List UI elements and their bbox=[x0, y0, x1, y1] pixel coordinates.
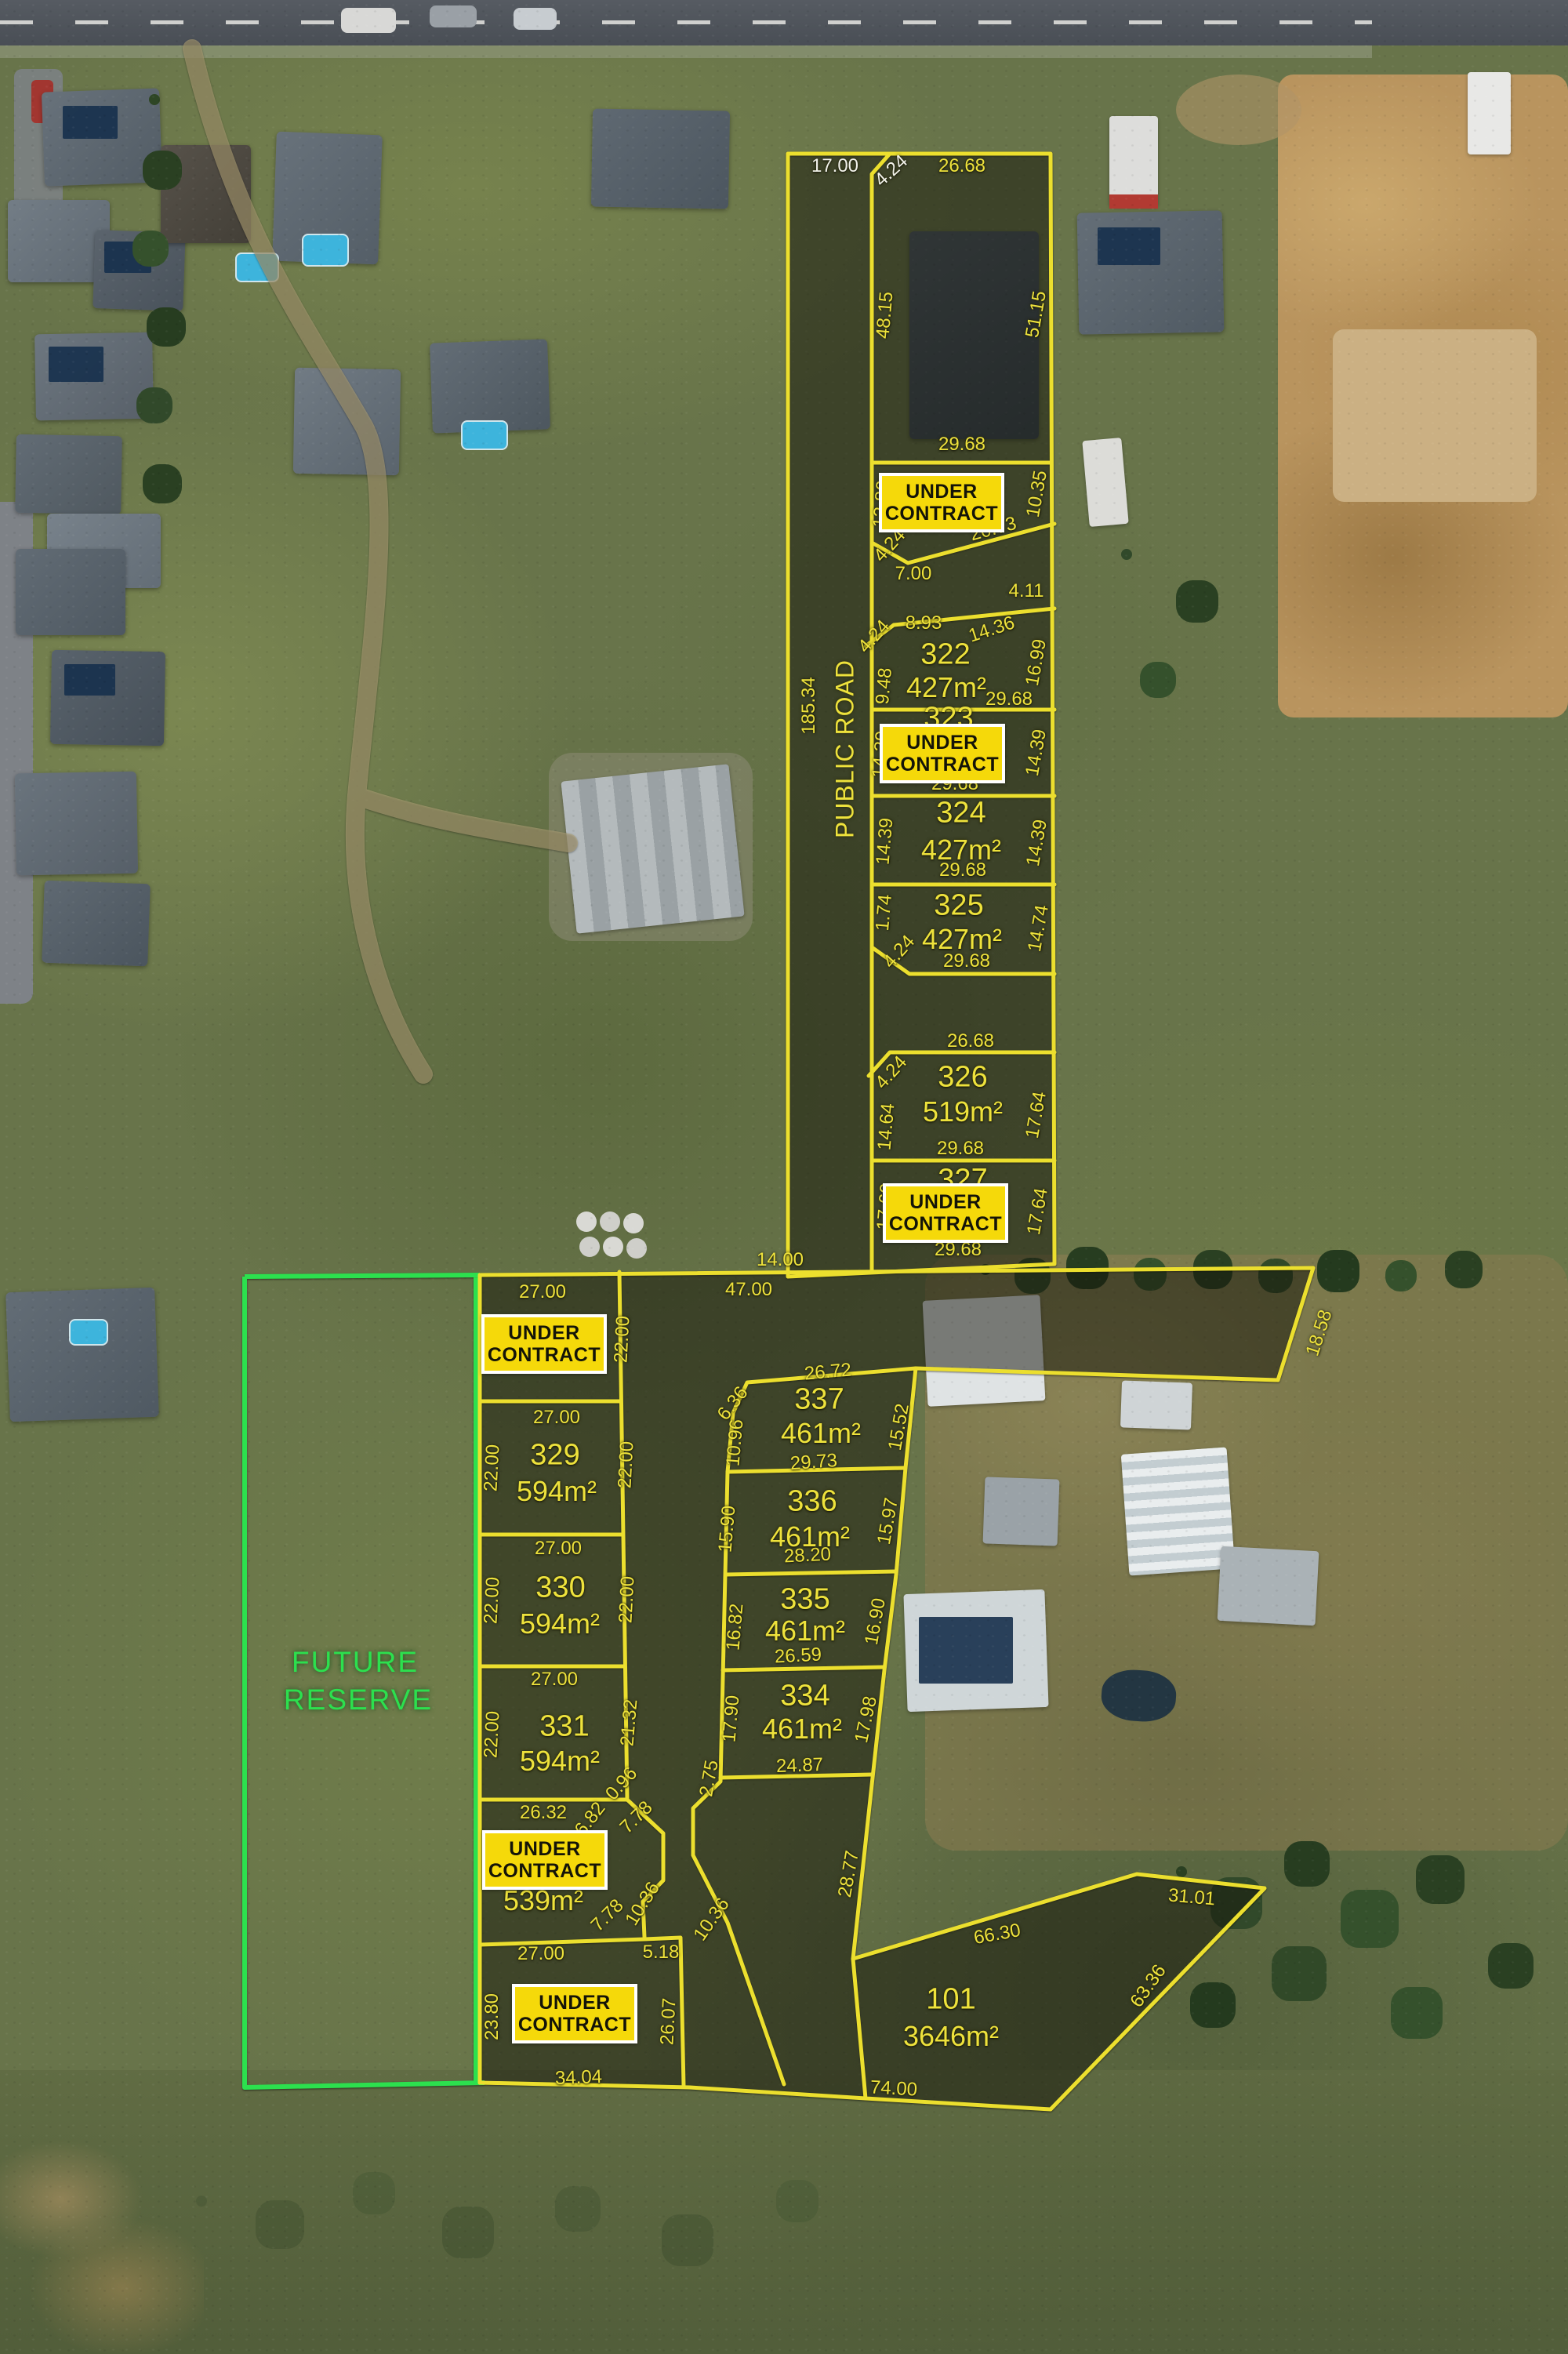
dimension-label: 14.00 bbox=[757, 1249, 804, 1271]
dimension-label: 17.64 bbox=[1022, 1090, 1051, 1140]
dimension-label: 17.90 bbox=[718, 1695, 744, 1743]
future-reserve-label-line2: RESERVE bbox=[284, 1684, 433, 1716]
dimension-label: 22.00 bbox=[614, 1440, 638, 1488]
dimension-label: 16.99 bbox=[1022, 638, 1051, 688]
under-contract-text-line2: CONTRACT bbox=[889, 1213, 1002, 1235]
dimension-label: 21.32 bbox=[616, 1698, 642, 1747]
dimension-label: 18.58 bbox=[1301, 1307, 1337, 1359]
dimension-label: 0.96 bbox=[601, 1763, 642, 1804]
dimension-label: 66.30 bbox=[972, 1920, 1022, 1949]
dimension-label: 74.00 bbox=[869, 2076, 917, 2101]
dimension-label: 7.00 bbox=[895, 563, 932, 585]
dimension-label: 15.90 bbox=[714, 1505, 740, 1553]
dimension-label: 16.90 bbox=[861, 1597, 891, 1647]
dimension-label: 15.97 bbox=[873, 1496, 903, 1546]
future-reserve-label-line1: FUTURE bbox=[292, 1646, 419, 1679]
dimension-label: 2.75 bbox=[695, 1759, 724, 1799]
under-contract-text-line2: CONTRACT bbox=[885, 503, 998, 525]
lot-area: 3646m² bbox=[903, 2020, 999, 2053]
lot-area: 427m² bbox=[922, 923, 1002, 956]
dimension-label: 26.59 bbox=[774, 1644, 822, 1668]
dimension-label: 14.64 bbox=[873, 1103, 899, 1151]
dimension-label: 26.72 bbox=[804, 1359, 852, 1385]
lot-number: 322 bbox=[920, 638, 970, 672]
under-contract-badge: UNDERCONTRACT bbox=[482, 1830, 608, 1890]
dimension-label: 4.24 bbox=[879, 931, 920, 972]
dimension-label: 27.00 bbox=[535, 1538, 582, 1560]
lot-area: 427m² bbox=[921, 834, 1001, 866]
under-contract-text-line1: UNDER bbox=[906, 732, 978, 754]
dimension-label: 17.64 bbox=[1023, 1186, 1053, 1237]
lot-area: 594m² bbox=[520, 1607, 600, 1640]
dimension-label: 15.52 bbox=[884, 1402, 914, 1452]
dimension-label: 29.73 bbox=[789, 1450, 838, 1475]
dimension-label: 4.24 bbox=[854, 616, 895, 657]
lot-area: 427m² bbox=[906, 671, 986, 704]
dimension-label: 22.00 bbox=[480, 1444, 504, 1491]
dimension-label: 10.36 bbox=[621, 1878, 665, 1930]
dimension-label: 63.36 bbox=[1126, 1960, 1171, 2011]
lot-number: 330 bbox=[535, 1571, 585, 1605]
under-contract-text-line1: UNDER bbox=[508, 1322, 579, 1344]
dimension-label: 14.74 bbox=[1024, 903, 1054, 954]
under-contract-text-line1: UNDER bbox=[539, 1992, 610, 2014]
dimension-label: 24.87 bbox=[775, 1754, 823, 1778]
lot-number: 325 bbox=[934, 889, 983, 923]
public-road-label: PUBLIC ROAD bbox=[831, 659, 860, 838]
dimension-label: 5.18 bbox=[643, 1942, 680, 1963]
lot-area: 461m² bbox=[762, 1713, 842, 1746]
dimension-label: 26.68 bbox=[947, 1030, 994, 1052]
dimension-label: 10.35 bbox=[1022, 469, 1052, 519]
dimension-label: 26.68 bbox=[938, 155, 985, 177]
subdivision-aerial-map: PUBLIC ROAD FUTURE RESERVE 17.004.2426.6… bbox=[0, 0, 1568, 2354]
dimension-label: 9.48 bbox=[872, 667, 897, 706]
dimension-label: 28.77 bbox=[834, 1849, 864, 1899]
under-contract-badge: UNDERCONTRACT bbox=[512, 1984, 637, 2043]
lot-area: 519m² bbox=[923, 1095, 1003, 1128]
under-contract-text-line2: CONTRACT bbox=[488, 1860, 601, 1882]
dimension-label: 4.24 bbox=[871, 1052, 912, 1093]
under-contract-text-line1: UNDER bbox=[906, 481, 977, 503]
lot-area: 461m² bbox=[781, 1417, 861, 1450]
dimension-label: 22.00 bbox=[480, 1576, 504, 1624]
dimension-label: 23.80 bbox=[481, 1993, 503, 2040]
lot-number: 329 bbox=[530, 1439, 579, 1473]
lot-number: 334 bbox=[780, 1680, 829, 1713]
lot-number: 324 bbox=[936, 797, 985, 830]
under-contract-text-line1: UNDER bbox=[909, 1191, 981, 1213]
dimension-label: 4.11 bbox=[1009, 580, 1044, 602]
dimension-label: 16.82 bbox=[722, 1603, 748, 1651]
dimension-label: 17.00 bbox=[811, 155, 858, 177]
dimension-label: 34.04 bbox=[554, 2066, 602, 2090]
dimension-label: 51.15 bbox=[1022, 289, 1051, 340]
dimension-label: 26.32 bbox=[520, 1802, 567, 1824]
dimension-label: 27.00 bbox=[533, 1407, 580, 1429]
under-contract-badge: UNDERCONTRACT bbox=[880, 724, 1005, 783]
dimension-label: 14.39 bbox=[1022, 818, 1052, 868]
dimension-label: 27.00 bbox=[519, 1281, 566, 1303]
dimension-label: 10.96 bbox=[722, 1419, 748, 1467]
dimension-label: 14.39 bbox=[872, 817, 898, 866]
dimension-label: 29.68 bbox=[938, 434, 985, 456]
dimension-label: 17.98 bbox=[851, 1695, 882, 1746]
dimension-label: 4.24 bbox=[870, 151, 912, 191]
dimension-label: 8.93 bbox=[906, 612, 942, 634]
lot-area: 461m² bbox=[765, 1615, 845, 1647]
dimension-label: 31.01 bbox=[1167, 1884, 1216, 1910]
dimension-label: 22.00 bbox=[615, 1575, 639, 1623]
lot-number: 335 bbox=[780, 1583, 829, 1617]
lot-area: 461m² bbox=[770, 1520, 850, 1553]
dimension-label: 10.36 bbox=[689, 1894, 734, 1945]
dimension-label: 14.36 bbox=[966, 612, 1018, 647]
under-contract-badge: UNDERCONTRACT bbox=[879, 473, 1004, 532]
lot-area: 594m² bbox=[517, 1475, 597, 1508]
lot-number: 326 bbox=[938, 1061, 987, 1095]
under-contract-text-line2: CONTRACT bbox=[518, 2014, 631, 2036]
dimension-label: 7.78 bbox=[616, 1797, 658, 1839]
lot-number: 336 bbox=[787, 1485, 837, 1519]
under-contract-badge: UNDERCONTRACT bbox=[883, 1183, 1008, 1243]
dimension-label: 29.68 bbox=[985, 688, 1033, 710]
dimension-label: 22.00 bbox=[480, 1710, 504, 1758]
under-contract-text-line2: CONTRACT bbox=[886, 754, 999, 776]
dimension-label: 22.00 bbox=[610, 1315, 634, 1363]
overlay-labels: PUBLIC ROAD FUTURE RESERVE 17.004.2426.6… bbox=[0, 0, 1568, 2354]
dimension-label: 185.34 bbox=[798, 677, 820, 734]
under-contract-text-line1: UNDER bbox=[509, 1838, 580, 1860]
under-contract-text-line2: CONTRACT bbox=[488, 1344, 601, 1366]
dimension-label: 1.74 bbox=[872, 894, 897, 932]
lot-number: 101 bbox=[926, 1983, 975, 2017]
dimension-label: 27.00 bbox=[517, 1943, 564, 1965]
dimension-label: 26.07 bbox=[656, 1997, 681, 2045]
lot-area: 594m² bbox=[520, 1745, 600, 1778]
dimension-label: 29.68 bbox=[937, 1138, 984, 1160]
dimension-label: 48.15 bbox=[872, 291, 898, 340]
under-contract-badge: UNDERCONTRACT bbox=[481, 1314, 607, 1374]
lot-number: 331 bbox=[539, 1710, 589, 1744]
dimension-label: 27.00 bbox=[531, 1669, 578, 1691]
dimension-label: 47.00 bbox=[725, 1279, 772, 1301]
dimension-label: 14.39 bbox=[1022, 728, 1051, 778]
lot-number: 337 bbox=[794, 1383, 844, 1417]
dimension-label: 7.78 bbox=[587, 1895, 629, 1937]
